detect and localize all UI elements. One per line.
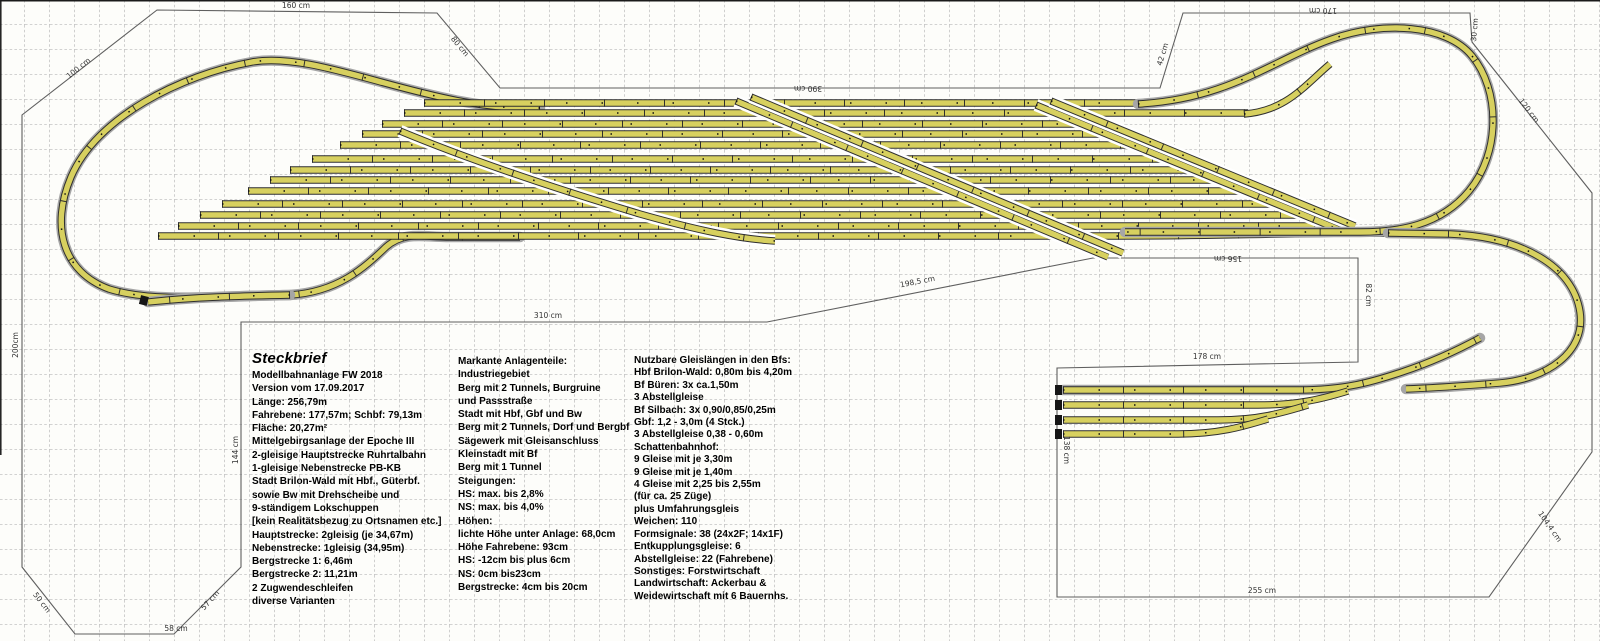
info-line: HS: -12cm bis plus 6cm xyxy=(458,554,629,567)
info-line: Stadt mit Hbf, Gbf und Bw xyxy=(458,408,629,421)
info-line: 2 Zugwendeschleifen xyxy=(252,582,442,595)
info-line: 3 Abstellgleise 0,38 - 0,60m xyxy=(634,429,792,441)
dimension-label: 156 cm xyxy=(1214,254,1242,263)
info-line: Formsignale: 38 (24x2F; 14x1F) xyxy=(634,529,792,541)
info-line: sowie Bw mit Drehscheibe und xyxy=(252,489,442,502)
info-line: Sonstiges: Forstwirtschaft xyxy=(634,566,792,578)
page-title: Steckbrief xyxy=(252,349,442,369)
buffer-stop xyxy=(1055,400,1062,410)
dimension-label: 170 cm xyxy=(1309,6,1337,15)
info-line: Entkupplungsgleise: 6 xyxy=(634,541,792,553)
buffer-stop xyxy=(1055,385,1062,395)
info-line: 9-ständigem Lokschuppen xyxy=(252,502,442,515)
track-plan-canvas: 160 cm100 cm80 cm390 cm42 cm170 cm30 cm1… xyxy=(0,0,1600,641)
info-line: 9 Gleise mit je 3,30m xyxy=(634,454,792,466)
info-line: Höhe Fahrebene: 93cm xyxy=(458,541,629,554)
info-line: Gbf: 1,2 - 3,0m (4 Stck.) xyxy=(634,417,792,429)
info-line: Hbf Brilon-Wald: 0,80m bis 4,20m xyxy=(634,367,792,379)
info-line: NS: max. bis 4,0% xyxy=(458,501,629,514)
dimension-label: 200cm xyxy=(11,332,20,358)
info-line: Weichen: 110 xyxy=(634,516,792,528)
info-line: Fahrebene: 177,57m; Schbf: 79,13m xyxy=(252,409,442,422)
info-line: Bergstrecke: 4cm bis 20cm xyxy=(458,581,629,594)
dimension-label: 255 cm xyxy=(1248,586,1276,595)
info-line: Bf Büren: 3x ca.1,50m xyxy=(634,380,792,392)
info-line: Länge: 256,79m xyxy=(252,396,442,409)
plan-grid xyxy=(0,0,1600,641)
info-line: Mittelgebirgsanlage der Epoche III xyxy=(252,435,442,448)
info-line: 3 Abstellgleise xyxy=(634,392,792,404)
info-column-general: Steckbrief Modellbahnanlage FW 2018Versi… xyxy=(252,349,442,608)
dimension-label: 82 cm xyxy=(1364,283,1373,306)
dimension-label: 310 cm xyxy=(534,311,562,320)
info-line: Kleinstadt mit Bf xyxy=(458,448,629,461)
info-line: Abstellgleise: 22 (Fahrebene) xyxy=(634,554,792,566)
info-line: Berg mit 2 Tunnels, Burgruine xyxy=(458,382,629,395)
info-line: NS: 0cm bis23cm xyxy=(458,568,629,581)
info-line: Nebenstrecke: 1gleisig (34,95m) xyxy=(252,542,442,555)
info-line: Berg mit 2 Tunnels, Dorf und Bergbf xyxy=(458,421,629,434)
info-line: und Passstraße xyxy=(458,395,629,408)
dimension-label: 178 cm xyxy=(1193,352,1221,361)
info-line: Schattenbahnhof: xyxy=(634,442,792,454)
info-line: [kein Realitätsbezug zu Ortsnamen etc.] xyxy=(252,515,442,528)
dimension-label: 160 cm xyxy=(282,1,310,10)
info-line: Hauptstrecke: 2gleisig (je 34,67m) xyxy=(252,529,442,542)
buffer-stop xyxy=(1055,429,1062,439)
info-line: Bergstrecke 2: 11,21m xyxy=(252,568,442,581)
buffer-stop xyxy=(1055,415,1062,425)
dimension-label: 58 cm xyxy=(164,624,187,633)
info-line: (für ca. 25 Züge) xyxy=(634,491,792,503)
info-line: Bf Silbach: 3x 0,90/0,85/0,25m xyxy=(634,405,792,417)
dimension-label: 138 cm xyxy=(1062,436,1071,464)
info-line: Industriegebiet xyxy=(458,368,629,381)
info-line: diverse Varianten xyxy=(252,595,442,608)
info-line: Weidewirtschaft mit 6 Bauernhs. xyxy=(634,591,792,603)
info-line: Version vom 17.09.2017 xyxy=(252,382,442,395)
dimension-label: 390 cm xyxy=(794,84,822,93)
info-line: Sägewerk mit Gleisanschluss xyxy=(458,435,629,448)
info-line: plus Umfahrungsgleis xyxy=(634,504,792,516)
info-column-track-lengths: Nutzbare Gleislängen in den Bfs:Hbf Bril… xyxy=(634,355,792,603)
info-line: lichte Höhe unter Anlage: 68,0cm xyxy=(458,528,629,541)
info-line: HS: max. bis 2,8% xyxy=(458,488,629,501)
info-line: 4 Gleise mit 2,25 bis 2,55m xyxy=(634,479,792,491)
info-line: Landwirtschaft: Ackerbau & xyxy=(634,578,792,590)
info-column-features: Markante Anlagenteile:IndustriegebietBer… xyxy=(458,355,629,594)
info-line: Bergstrecke 1: 6,46m xyxy=(252,555,442,568)
info-line: 1-gleisige Nebenstrecke PB-KB xyxy=(252,462,442,475)
info-line: Fläche: 20,27m² xyxy=(252,422,442,435)
info-line: Modellbahnanlage FW 2018 xyxy=(252,369,442,382)
info-line: Steigungen: xyxy=(458,475,629,488)
info-line: Markante Anlagenteile: xyxy=(458,355,629,368)
info-line: Stadt Brilon-Wald mit Hbf., Güterbf. xyxy=(252,475,442,488)
info-line: Nutzbare Gleislängen in den Bfs: xyxy=(634,355,792,367)
track-plan-page: 160 cm100 cm80 cm390 cm42 cm170 cm30 cm1… xyxy=(0,0,1600,641)
info-line: Höhen: xyxy=(458,515,629,528)
info-line: 2-gleisige Hauptstrecke Ruhrtalbahn xyxy=(252,449,442,462)
info-line: 9 Gleise mit je 1,40m xyxy=(634,467,792,479)
info-line: Berg mit 1 Tunnel xyxy=(458,461,629,474)
dimension-label: 144 cm xyxy=(231,436,240,464)
